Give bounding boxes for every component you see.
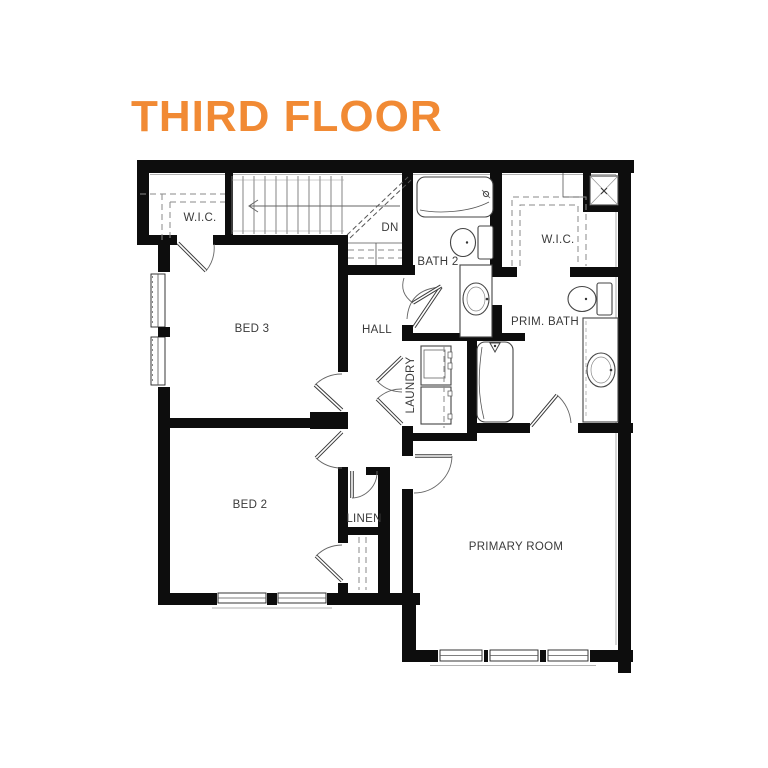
room-label-hall: HALL <box>362 324 392 336</box>
primary-bath-sink-icon <box>583 318 618 422</box>
bed2-closet-rod <box>359 537 366 590</box>
primary-bath-toilet-icon <box>568 283 612 315</box>
wic-right-shelves-outer <box>512 197 586 266</box>
door-wic-left <box>178 243 214 271</box>
staircase <box>232 176 411 265</box>
room-label-wic-right: W.I.C. <box>541 234 574 246</box>
room-label-linen: LINEN <box>346 513 381 525</box>
room-label-bed3: BED 3 <box>235 323 270 335</box>
room-label-laundry: LAUNDRY <box>405 357 417 414</box>
door-linen <box>352 471 377 498</box>
washer-icon <box>421 346 452 385</box>
door-primary-room <box>414 456 452 493</box>
fixtures <box>417 176 618 428</box>
door-bed2-closet <box>316 545 342 581</box>
window <box>151 335 172 387</box>
window <box>488 648 540 664</box>
room-label-prim-bath: PRIM. BATH <box>511 316 579 328</box>
bath2-sink-icon <box>460 265 492 337</box>
primary-bath-tub-icon <box>477 342 513 422</box>
door-primary-bath <box>531 395 571 426</box>
window <box>546 648 590 664</box>
door-laundry-double <box>377 357 402 424</box>
window <box>151 272 172 329</box>
shower-icon <box>590 176 618 205</box>
door-bed2 <box>316 432 342 468</box>
room-label-bed2: BED 2 <box>233 499 268 511</box>
room-label-wic-left: W.I.C. <box>183 212 216 224</box>
window <box>438 648 484 664</box>
door-hall-vestibule <box>403 278 441 303</box>
dryer-icon <box>421 387 452 424</box>
bath2-toilet-icon <box>451 226 494 259</box>
room-label-stairs-dn: DN <box>381 222 398 234</box>
stair-break-line <box>347 177 411 238</box>
window <box>277 591 327 607</box>
floor-plan-drawing: W.I.C. DN BATH 2 W.I.C. BED 3 HALL PRIM.… <box>0 0 768 768</box>
room-label-bath2: BATH 2 <box>417 256 458 268</box>
door-bath2 <box>407 287 441 327</box>
floor-plan-page: THIRD FLOOR <box>0 0 768 768</box>
room-label-primary: PRIMARY ROOM <box>469 541 564 553</box>
door-bed3 <box>315 374 342 410</box>
window <box>217 591 267 607</box>
bath2-tub-icon <box>417 177 493 217</box>
